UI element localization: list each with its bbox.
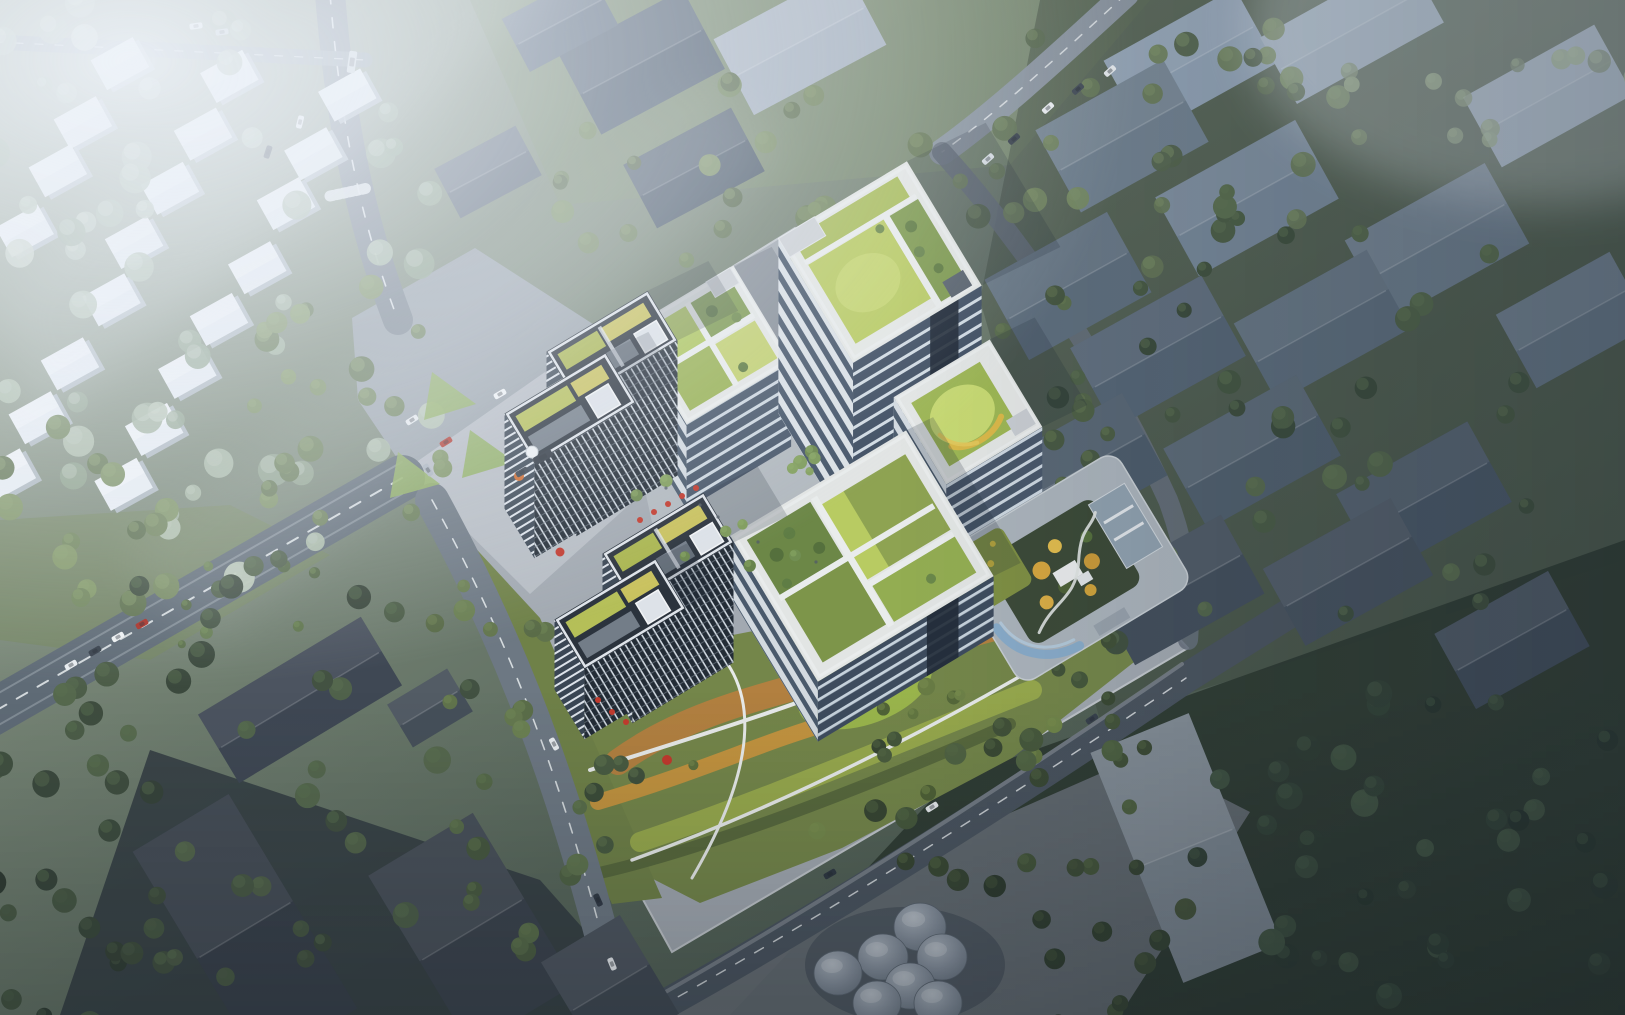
haze-overlay bbox=[0, 0, 1625, 1015]
aerial-render: Aerial architectural rendering of a mixe… bbox=[0, 0, 1625, 1015]
shade-bottom bbox=[0, 0, 1625, 1015]
scene-svg bbox=[0, 0, 1625, 1015]
